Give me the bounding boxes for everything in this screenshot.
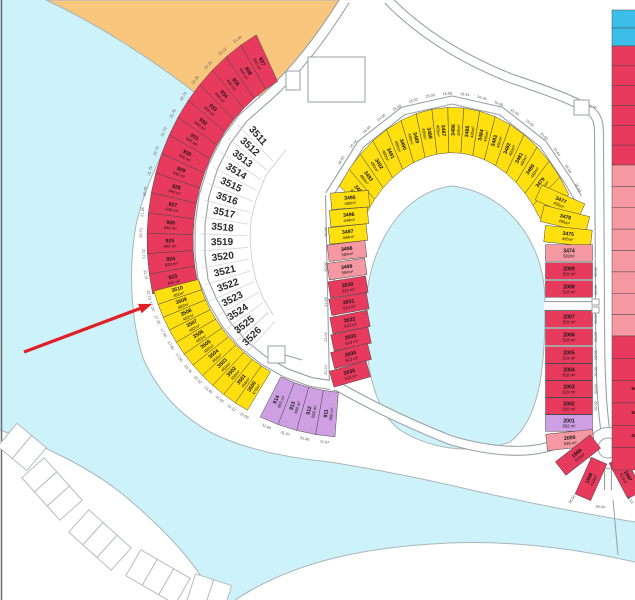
plot-edge-partial[interactable] bbox=[612, 86, 635, 106]
dimension-label: 31.96 bbox=[300, 436, 310, 442]
structure-outline bbox=[592, 299, 599, 305]
svg-text:619 m²: 619 m² bbox=[563, 320, 576, 325]
beach-plot-cluster bbox=[69, 510, 131, 570]
dimension-label: 15.00 bbox=[215, 395, 225, 404]
beach-plot-cluster bbox=[22, 458, 82, 520]
svg-text:619 m²: 619 m² bbox=[563, 373, 576, 378]
svg-text:619 m²: 619 m² bbox=[563, 356, 576, 361]
plot-edge-partial[interactable] bbox=[612, 293, 635, 314]
svg-text:3519: 3519 bbox=[211, 237, 234, 248]
plot-2002[interactable]: 2002619 m² bbox=[546, 398, 593, 415]
plot-edge-partial[interactable] bbox=[612, 448, 635, 470]
plot-label: 64 bbox=[631, 386, 635, 391]
plot-label: 3486485m² bbox=[451, 124, 461, 136]
dimension-label: 22.04 bbox=[324, 332, 328, 342]
dimension-label: 31.97 bbox=[280, 430, 290, 437]
plot-label: 3518 bbox=[211, 221, 235, 234]
dimension-label: 36.50 bbox=[568, 494, 577, 504]
dimension-label: 15.75 bbox=[183, 364, 192, 374]
plot-2004[interactable]: 2004619 m² bbox=[546, 364, 593, 381]
plot-label: 3487485m² bbox=[435, 125, 446, 138]
plot-2003[interactable]: 2003619 m² bbox=[546, 381, 593, 398]
plot-label: 62 bbox=[631, 433, 635, 438]
plot-2005[interactable]: 2005619 m² bbox=[546, 347, 593, 364]
dimension-label: 20.73 bbox=[139, 228, 143, 238]
structure-outline bbox=[308, 57, 365, 102]
plot-map-svg: 3511351235133514351535163517351835193520… bbox=[0, 0, 635, 600]
dimension-label: 15.12 bbox=[226, 404, 236, 413]
plot-edge-partial[interactable] bbox=[612, 125, 635, 145]
plot-edge-partial[interactable] bbox=[612, 165, 635, 186]
dimension-label: 20.00 bbox=[594, 350, 598, 360]
dimension-label: 38.04 bbox=[595, 505, 605, 510]
dimension-label: 21.36 bbox=[140, 207, 145, 217]
dimension-label: 20.00 bbox=[324, 262, 328, 272]
edge-strip: 645462 bbox=[612, 10, 635, 470]
dimension-label: 15.02 bbox=[408, 97, 418, 104]
svg-text:640 m²: 640 m² bbox=[164, 243, 177, 248]
dimension-label: 21.99 bbox=[324, 297, 328, 307]
dimension-label: 22.73 bbox=[141, 249, 145, 259]
dimension-label: 20.00 bbox=[594, 267, 598, 277]
svg-text:3520: 3520 bbox=[211, 250, 235, 264]
svg-text:619 m²: 619 m² bbox=[563, 272, 576, 277]
dimension-label: 20.24 bbox=[324, 365, 328, 375]
dimension-label: 22.73 bbox=[146, 290, 152, 300]
dimension-label: 20.00 bbox=[594, 401, 598, 411]
plot-edge-partial[interactable] bbox=[612, 46, 635, 66]
svg-text:619 m²: 619 m² bbox=[563, 407, 576, 412]
dimension-label: 20.00 bbox=[594, 285, 598, 295]
dimension-label: 20.00 bbox=[594, 367, 598, 377]
svg-text:3518: 3518 bbox=[211, 221, 235, 234]
svg-text:619 m²: 619 m² bbox=[563, 290, 576, 295]
plot-edge-partial[interactable] bbox=[612, 106, 635, 126]
plot-3519[interactable]: 3519 bbox=[211, 237, 234, 248]
svg-text:444m²: 444m² bbox=[343, 217, 356, 223]
svg-text:619 m²: 619 m² bbox=[563, 338, 576, 343]
svg-text:480m²: 480m² bbox=[344, 200, 357, 206]
structure-outline bbox=[268, 346, 285, 363]
plot-label: 3519 bbox=[211, 237, 234, 248]
dimension-label: 20.00 bbox=[594, 314, 598, 324]
white-plots-back-edge bbox=[250, 150, 286, 315]
dimension-label: 17.35 bbox=[153, 315, 160, 325]
plot-edge-partial[interactable] bbox=[612, 381, 635, 403]
structure-line bbox=[285, 355, 302, 360]
map-canvas: 3511351235133514351535163517351835193520… bbox=[0, 0, 635, 600]
plot-2008[interactable]: 2008619 m² bbox=[546, 281, 593, 298]
structure-outline bbox=[286, 71, 300, 90]
dimension-label: 31.90 bbox=[261, 423, 271, 430]
dimension-label: 16.44 bbox=[477, 95, 487, 101]
plot-label: 3485485m² bbox=[464, 125, 475, 138]
plot-label: 3520 bbox=[211, 250, 235, 264]
svg-text:619 m²: 619 m² bbox=[563, 390, 576, 395]
plot-2001[interactable]: 2001692 m² bbox=[546, 415, 593, 432]
plot-3474[interactable]: 3474502m² bbox=[546, 245, 593, 262]
structure-outline bbox=[574, 100, 589, 115]
dimension-label: 15.00 bbox=[443, 92, 453, 96]
dimension-label: 17.50 bbox=[160, 328, 168, 338]
plot-edge-partial[interactable] bbox=[612, 336, 635, 358]
dimension-label: 17.65 bbox=[167, 340, 175, 350]
dimension-label: 20.00 bbox=[594, 384, 598, 394]
plot-3518[interactable]: 3518 bbox=[211, 221, 235, 234]
dimension-label: 17.50 bbox=[174, 353, 183, 363]
plot-label: 3488485m² bbox=[421, 127, 433, 141]
plot-edge-partial[interactable] bbox=[612, 145, 635, 165]
plot-3520[interactable]: 3520 bbox=[211, 250, 235, 264]
dimension-label: 20.00 bbox=[594, 332, 598, 342]
plot-2006[interactable]: 2006619 m² bbox=[546, 329, 593, 346]
svg-text:692 m²: 692 m² bbox=[563, 424, 576, 429]
svg-text:485m²: 485m² bbox=[435, 125, 441, 138]
plot-edge-partial[interactable] bbox=[612, 10, 635, 28]
svg-text:485m²: 485m² bbox=[456, 124, 461, 136]
dimension-label: 20.06 bbox=[324, 227, 328, 237]
white-plot-boundary bbox=[200, 234, 247, 236]
plot-2007[interactable]: 2007619 m² bbox=[546, 311, 593, 328]
dimension-label: 15.00 bbox=[239, 412, 249, 420]
dimension-label: 31.97 bbox=[319, 440, 329, 445]
plot-925[interactable]: 925640 m² bbox=[147, 233, 193, 253]
plot-edge-partial[interactable] bbox=[612, 358, 635, 380]
plot-edge-partial[interactable] bbox=[612, 208, 635, 229]
dimension-label: 15.00 bbox=[425, 93, 435, 99]
plot-edge-partial[interactable] bbox=[612, 186, 635, 207]
plot-edge-partial[interactable] bbox=[612, 66, 635, 86]
plot-edge-partial[interactable] bbox=[612, 229, 635, 250]
plot-2009[interactable]: 2009619 m² bbox=[546, 263, 593, 280]
plot-edge-partial[interactable] bbox=[612, 315, 635, 336]
dimension-label: 21.73 bbox=[143, 270, 148, 280]
plot-edge-partial[interactable] bbox=[612, 272, 635, 293]
dimension-label: 16.44 bbox=[460, 92, 470, 97]
beach-plot-cluster bbox=[126, 550, 190, 600]
dimension-label: 20.75 bbox=[143, 186, 149, 196]
plot-edge-partial[interactable] bbox=[612, 28, 635, 46]
svg-text:502m²: 502m² bbox=[563, 254, 575, 259]
plot-edge-partial[interactable] bbox=[612, 251, 635, 272]
dimension-label: 15.12 bbox=[193, 375, 203, 385]
plot-label: 54 bbox=[631, 410, 635, 415]
plot-3495[interactable]: 3495480m² bbox=[330, 190, 369, 209]
dimension-label: 17.20 bbox=[148, 301, 155, 311]
structure-outline bbox=[592, 307, 599, 313]
dimension-label: 13.46 bbox=[203, 385, 213, 394]
